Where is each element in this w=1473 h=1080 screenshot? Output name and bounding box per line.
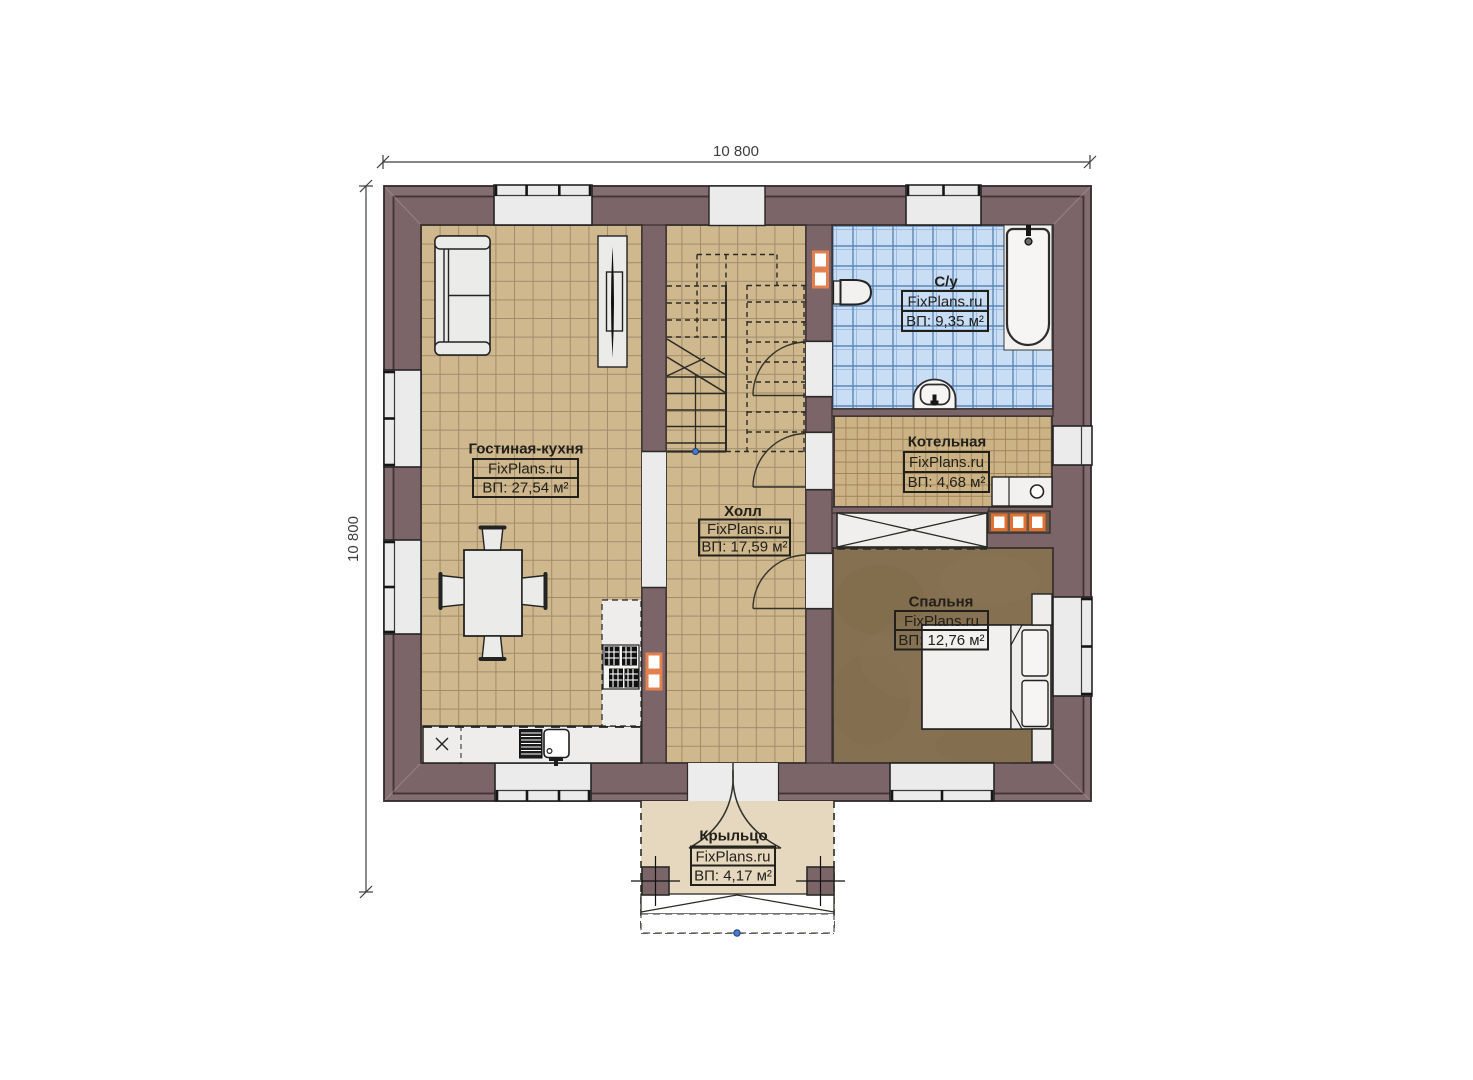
svg-text:Спальня: Спальня	[909, 594, 974, 611]
svg-text:Котельная: Котельная	[908, 434, 987, 451]
svg-text:С/у: С/у	[934, 274, 958, 291]
svg-text:ВП: 4,17 м²: ВП: 4,17 м²	[694, 868, 772, 885]
svg-text:ВП: 17,59 м²: ВП: 17,59 м²	[701, 539, 787, 556]
svg-text:10 800: 10 800	[713, 143, 759, 160]
svg-text:FixPlans.ru: FixPlans.ru	[695, 849, 770, 866]
svg-text:FixPlans.ru: FixPlans.ru	[707, 521, 782, 538]
svg-text:ВП: 27,54 м²: ВП: 27,54 м²	[482, 480, 568, 497]
svg-text:FixPlans.ru: FixPlans.ru	[909, 454, 984, 471]
svg-text:ВП: 12,76 м²: ВП: 12,76 м²	[898, 632, 984, 649]
svg-text:Крыльцо: Крыльцо	[699, 828, 767, 845]
svg-text:ВП: 9,35 м²: ВП: 9,35 м²	[906, 313, 984, 330]
svg-text:Гостиная-кухня: Гостиная-кухня	[469, 441, 584, 458]
svg-text:10 800: 10 800	[345, 516, 362, 562]
svg-text:Холл: Холл	[724, 503, 762, 520]
svg-text:ВП: 4,68 м²: ВП: 4,68 м²	[908, 474, 986, 491]
svg-text:FixPlans.ru: FixPlans.ru	[488, 461, 563, 478]
svg-text:FixPlans.ru: FixPlans.ru	[904, 613, 979, 630]
svg-text:FixPlans.ru: FixPlans.ru	[907, 294, 982, 311]
